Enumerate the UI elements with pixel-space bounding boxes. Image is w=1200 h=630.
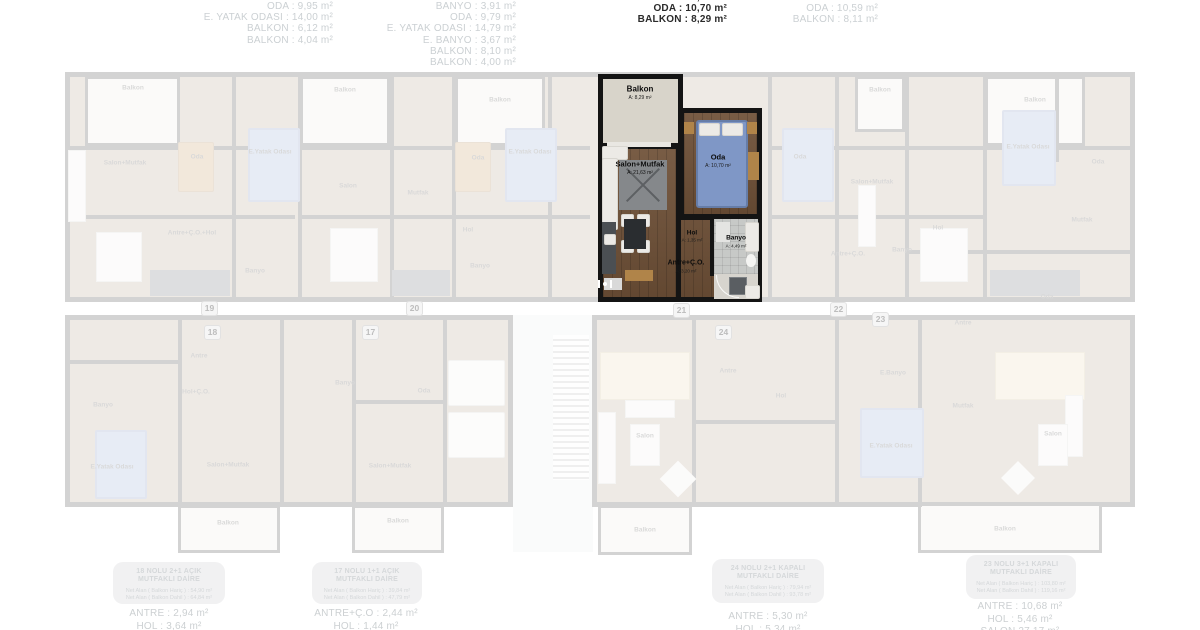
room-label: Balkon (994, 526, 1016, 533)
wall (676, 144, 681, 302)
unit-badge-19[interactable]: 19 (201, 301, 218, 316)
measurements-unit-20: BANYO : 3,91 m² ODA : 9,79 m² E. YATAK O… (387, 1, 516, 68)
room-label: Oda (191, 154, 204, 161)
wall (983, 72, 987, 302)
banyo-label: Banyo (726, 235, 746, 242)
room-label: Banyo (892, 247, 912, 254)
antre-label: Antre+Ç.O. (668, 260, 705, 267)
dining-table (600, 352, 690, 400)
room-label: Salon+Mutfak (104, 160, 146, 167)
nightstand (747, 122, 757, 134)
wall (905, 72, 909, 302)
nightstand (684, 122, 694, 134)
hol-label: Hol (687, 230, 697, 237)
dresser (748, 152, 759, 180)
unit-measures-23: ANTRE : 10,68 m² HOL : 5,46 m² SALON 27,… (978, 601, 1063, 630)
room-label: Antre (955, 320, 972, 327)
wall (390, 72, 394, 302)
antre-area: A: 3,20 m² (676, 269, 697, 274)
room-label: Banyo (93, 402, 113, 409)
room-label: Antre+Ç.O. (831, 251, 865, 258)
sofa (598, 412, 616, 484)
room-label: Salon+Mutfak (207, 462, 249, 469)
room-label: E.Yatak Odası (91, 464, 134, 471)
highlighted-unit-21[interactable]: Balkon A: 8,29 m² Salon+Mutfak A: 21,63 … (595, 72, 765, 305)
room-label: Oda (794, 154, 807, 161)
wall (352, 400, 447, 404)
salon-label: Salon+Mutfak (616, 160, 665, 169)
unit-badge-20[interactable]: 20 (406, 301, 423, 316)
unit-info-box-23: 23 NOLU 3+1 KAPALI MUTFAKLI DAİRE Net Al… (966, 555, 1076, 599)
dining-table (330, 228, 378, 282)
room-label: E.Banyo (880, 370, 906, 377)
bed (248, 128, 300, 202)
wall (768, 72, 772, 302)
room-label: Balkon (217, 520, 239, 527)
bed (448, 360, 505, 406)
room-label: Balkon (334, 87, 356, 94)
banyo-area: A: 4,49 m² (726, 244, 747, 249)
wall (65, 360, 180, 364)
room-label: Hol (776, 393, 786, 400)
pillow (722, 123, 743, 136)
cabinet (625, 270, 653, 281)
sofa (68, 150, 86, 222)
room-label: Oda (472, 155, 485, 162)
balcony (178, 505, 280, 553)
room-label: E.Yatak Odası (870, 443, 913, 450)
room-label: Salon (1044, 431, 1062, 438)
room-label: Salon+Mutfak (851, 179, 893, 186)
room-label: Antre (720, 368, 737, 375)
salon-area: A: 21,63 m² (627, 170, 653, 176)
dining-table (995, 352, 1085, 400)
unit-measures-24: ANTRE : 5,30 m² HOL : 5,34 m² (728, 611, 807, 630)
wall (443, 315, 447, 507)
measurements-unit-21: BANYO : 4,49 m² ODA : 10,70 m² BALKON : … (638, 0, 727, 26)
pillow (699, 123, 720, 136)
room-label: Balkon (122, 85, 144, 92)
unit-measures-18: ANTRE : 2,94 m² HOL : 3,64 m² (129, 608, 208, 630)
room-label: E.Yatak Odası (1007, 144, 1050, 151)
unit-badge-23[interactable]: 23 (872, 312, 889, 327)
wall (178, 315, 182, 507)
unit-measures-17: ANTRE+Ç.O : 2,44 m² HOL : 1,44 m² (314, 608, 418, 630)
room-label: E.Yatak Odası (249, 149, 292, 156)
room-label: Banyo (245, 268, 265, 275)
toilet (746, 254, 756, 267)
room-label: Oda (1092, 159, 1105, 166)
room-label: Balkon (1024, 97, 1046, 104)
room-label: Salon (636, 433, 654, 440)
room-label: Antre (191, 353, 208, 360)
room-label: Salon+Mutfak (369, 463, 411, 470)
wall (352, 315, 356, 507)
dining-table (96, 232, 142, 282)
balkon-area: A: 8,29 m² (628, 95, 651, 101)
wall (835, 315, 839, 507)
wall (696, 420, 838, 424)
room-label: Oda (1041, 294, 1054, 301)
wall (65, 215, 295, 219)
balcony (352, 505, 444, 553)
oda-label: Oda (711, 153, 726, 162)
wall (300, 215, 590, 219)
sofa (602, 158, 618, 230)
measurements-unit-22: ODA : 10,59 m² BALKON : 8,11 m² (793, 3, 878, 25)
unit-badge-17[interactable]: 17 (362, 325, 379, 340)
bed (178, 142, 214, 192)
vanity (745, 222, 759, 252)
room-label: Mutfak (408, 190, 429, 197)
balkon-label: Balkon (627, 85, 654, 94)
measurements-unit-19: ODA : 9,95 m² E. YATAK ODASI : 14,00 m² … (204, 1, 333, 46)
kitchen-counter (392, 270, 450, 296)
balcony (855, 76, 905, 132)
unit-info-box-18: 18 NOLU 2+1 AÇIK MUTFAKLI DAİRE Net Alan… (113, 562, 225, 604)
room-label: Balkon (634, 527, 656, 534)
room-label: Salon (339, 183, 357, 190)
room-label: Balkon (387, 518, 409, 525)
room-label: Mutfak (1072, 217, 1093, 224)
bed (782, 128, 834, 202)
unit-info-box-17: 17 NOLU 1+1 AÇIK MUTFAKLI DAİRE Net Alan… (312, 562, 422, 604)
room-label: Hol (933, 225, 943, 232)
room-label: Oda (418, 388, 431, 395)
kitchen-counter (602, 222, 616, 274)
sofa (625, 400, 675, 418)
scale-marker-icon (598, 280, 612, 288)
unit-badge-21[interactable]: 21 (673, 303, 690, 318)
wall (835, 72, 839, 302)
room-label: Hol+Ç.O. (182, 389, 210, 396)
wall (280, 315, 284, 507)
bed (505, 128, 557, 202)
unit-info-box-24: 24 NOLU 2+1 KAPALI MUTFAKLI DAİRE Net Al… (712, 559, 824, 603)
dining-table (920, 228, 968, 282)
floorplan-page: Balkon Balkon Balkon Balkon Balkon Salon… (0, 0, 1200, 630)
sink (604, 234, 616, 245)
kitchen-counter (150, 270, 230, 296)
unit-badge-22[interactable]: 22 (830, 302, 847, 317)
doormat (745, 285, 760, 299)
room-label: E.Yatak Odası (509, 149, 552, 156)
hol-area: A: 1,35 m² (682, 238, 703, 243)
dining-table (624, 219, 646, 249)
room-label: Banyo (335, 380, 355, 387)
unit-badge-18[interactable]: 18 (204, 325, 221, 340)
room-label: Antre+Ç.O.+Hol (168, 230, 216, 237)
room-label: Mutfak (953, 403, 974, 410)
sofa (858, 185, 876, 247)
oda-area: A: 10,70 m² (705, 163, 731, 169)
unit-badge-24[interactable]: 24 (715, 325, 732, 340)
room-label: Balkon (489, 97, 511, 104)
room-label: Balkon (869, 87, 891, 94)
wall (232, 72, 236, 302)
room-label: Banyo (470, 263, 490, 270)
staircase (553, 335, 589, 480)
rug (630, 424, 660, 466)
bed (448, 412, 505, 458)
kitchen-counter (990, 270, 1080, 296)
bed (455, 142, 491, 192)
room-label: Hol (463, 227, 473, 234)
